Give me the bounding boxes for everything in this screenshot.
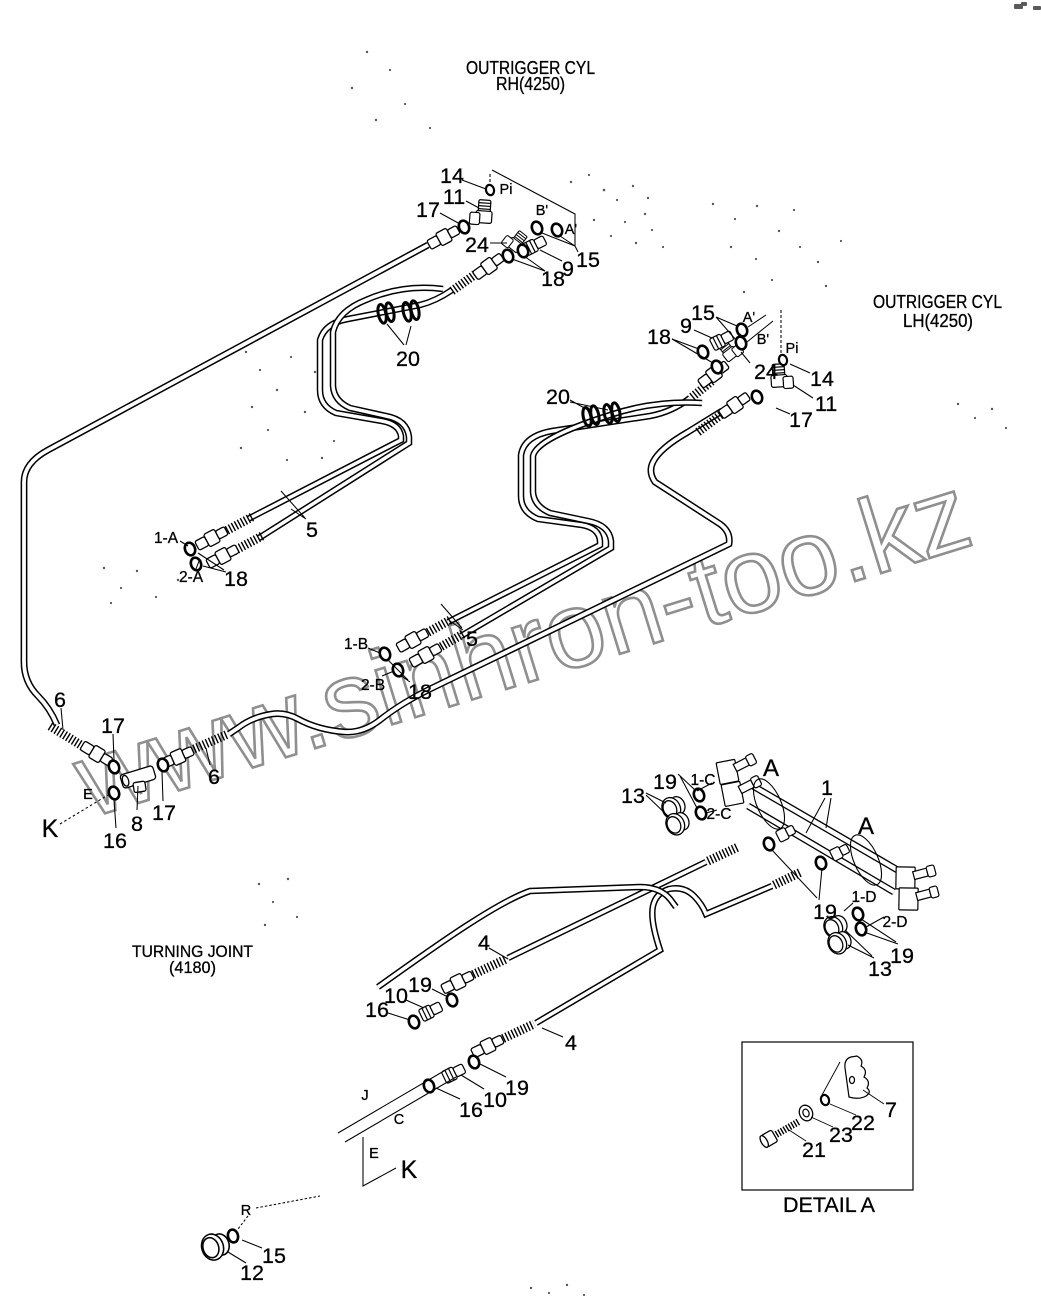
svg-text:18: 18 (647, 325, 671, 349)
svg-text:4: 4 (478, 931, 490, 955)
svg-text:9: 9 (562, 257, 574, 281)
svg-text:11: 11 (443, 185, 465, 209)
svg-text:16: 16 (459, 1098, 483, 1122)
svg-text:18: 18 (224, 567, 248, 591)
svg-text:E: E (369, 1146, 379, 1162)
svg-text:5: 5 (306, 518, 318, 542)
svg-text:2-D: 2-D (883, 914, 908, 931)
svg-text:DETAIL A: DETAIL A (783, 1193, 876, 1217)
svg-text:E: E (83, 787, 93, 803)
svg-text:19: 19 (505, 1076, 529, 1100)
svg-text:LH(4250): LH(4250) (903, 311, 973, 331)
svg-text:17: 17 (416, 198, 440, 222)
svg-text:13: 13 (621, 784, 645, 808)
svg-text:11: 11 (815, 392, 837, 416)
svg-text:2-C: 2-C (707, 806, 732, 823)
svg-text:15: 15 (691, 301, 715, 325)
svg-text:5: 5 (466, 627, 478, 651)
svg-text:8: 8 (131, 812, 143, 836)
svg-text:R: R (241, 1203, 251, 1219)
svg-text:14: 14 (810, 367, 834, 391)
svg-text:J: J (361, 1088, 368, 1104)
svg-text:K: K (401, 1156, 418, 1184)
svg-text:2-B: 2-B (361, 677, 385, 694)
svg-text:17: 17 (789, 408, 813, 432)
svg-text:20: 20 (546, 385, 570, 409)
svg-text:1-B: 1-B (344, 636, 368, 653)
svg-text:13: 13 (868, 957, 892, 981)
svg-text:19: 19 (653, 770, 677, 794)
svg-text:22: 22 (851, 1111, 875, 1135)
svg-text:16: 16 (103, 829, 127, 853)
svg-text:6: 6 (208, 765, 220, 789)
svg-text:19: 19 (813, 900, 837, 924)
svg-text:12: 12 (240, 1261, 264, 1285)
svg-text:2-A: 2-A (179, 569, 204, 586)
svg-text:(4180): (4180) (169, 958, 216, 977)
svg-text:9: 9 (680, 314, 692, 338)
svg-text:17: 17 (152, 801, 176, 825)
svg-text:10: 10 (483, 1088, 507, 1112)
svg-text:19: 19 (408, 973, 432, 997)
svg-text:K: K (42, 815, 59, 843)
svg-text:16: 16 (365, 998, 389, 1022)
svg-text:A: A (763, 755, 779, 782)
svg-text:24: 24 (754, 360, 778, 384)
svg-text:Pi: Pi (500, 182, 513, 198)
svg-text:C: C (394, 1112, 404, 1128)
svg-text:B': B' (536, 203, 549, 219)
svg-text:1-D: 1-D (852, 889, 877, 906)
svg-text:4: 4 (565, 1031, 577, 1055)
svg-text:20: 20 (396, 347, 420, 371)
svg-text:OUTRIGGER CYL: OUTRIGGER CYL (873, 292, 1002, 312)
svg-text:RH(4250): RH(4250) (496, 74, 565, 94)
svg-text:1-C: 1-C (691, 772, 716, 789)
svg-text:6: 6 (54, 688, 66, 712)
svg-text:Pi: Pi (786, 341, 799, 357)
svg-text:A: A (858, 813, 874, 840)
svg-text:24: 24 (465, 233, 489, 257)
svg-text:21: 21 (802, 1138, 826, 1162)
svg-text:15: 15 (576, 248, 600, 272)
svg-text:15: 15 (262, 1244, 286, 1268)
svg-text:19: 19 (890, 944, 914, 968)
svg-text:1: 1 (821, 776, 833, 800)
svg-text:A': A' (565, 222, 578, 238)
svg-text:1-A: 1-A (154, 530, 179, 547)
svg-text:B': B' (757, 332, 770, 348)
svg-text:23: 23 (829, 1123, 853, 1147)
svg-text:18: 18 (408, 680, 432, 704)
svg-text:7: 7 (885, 1098, 897, 1122)
